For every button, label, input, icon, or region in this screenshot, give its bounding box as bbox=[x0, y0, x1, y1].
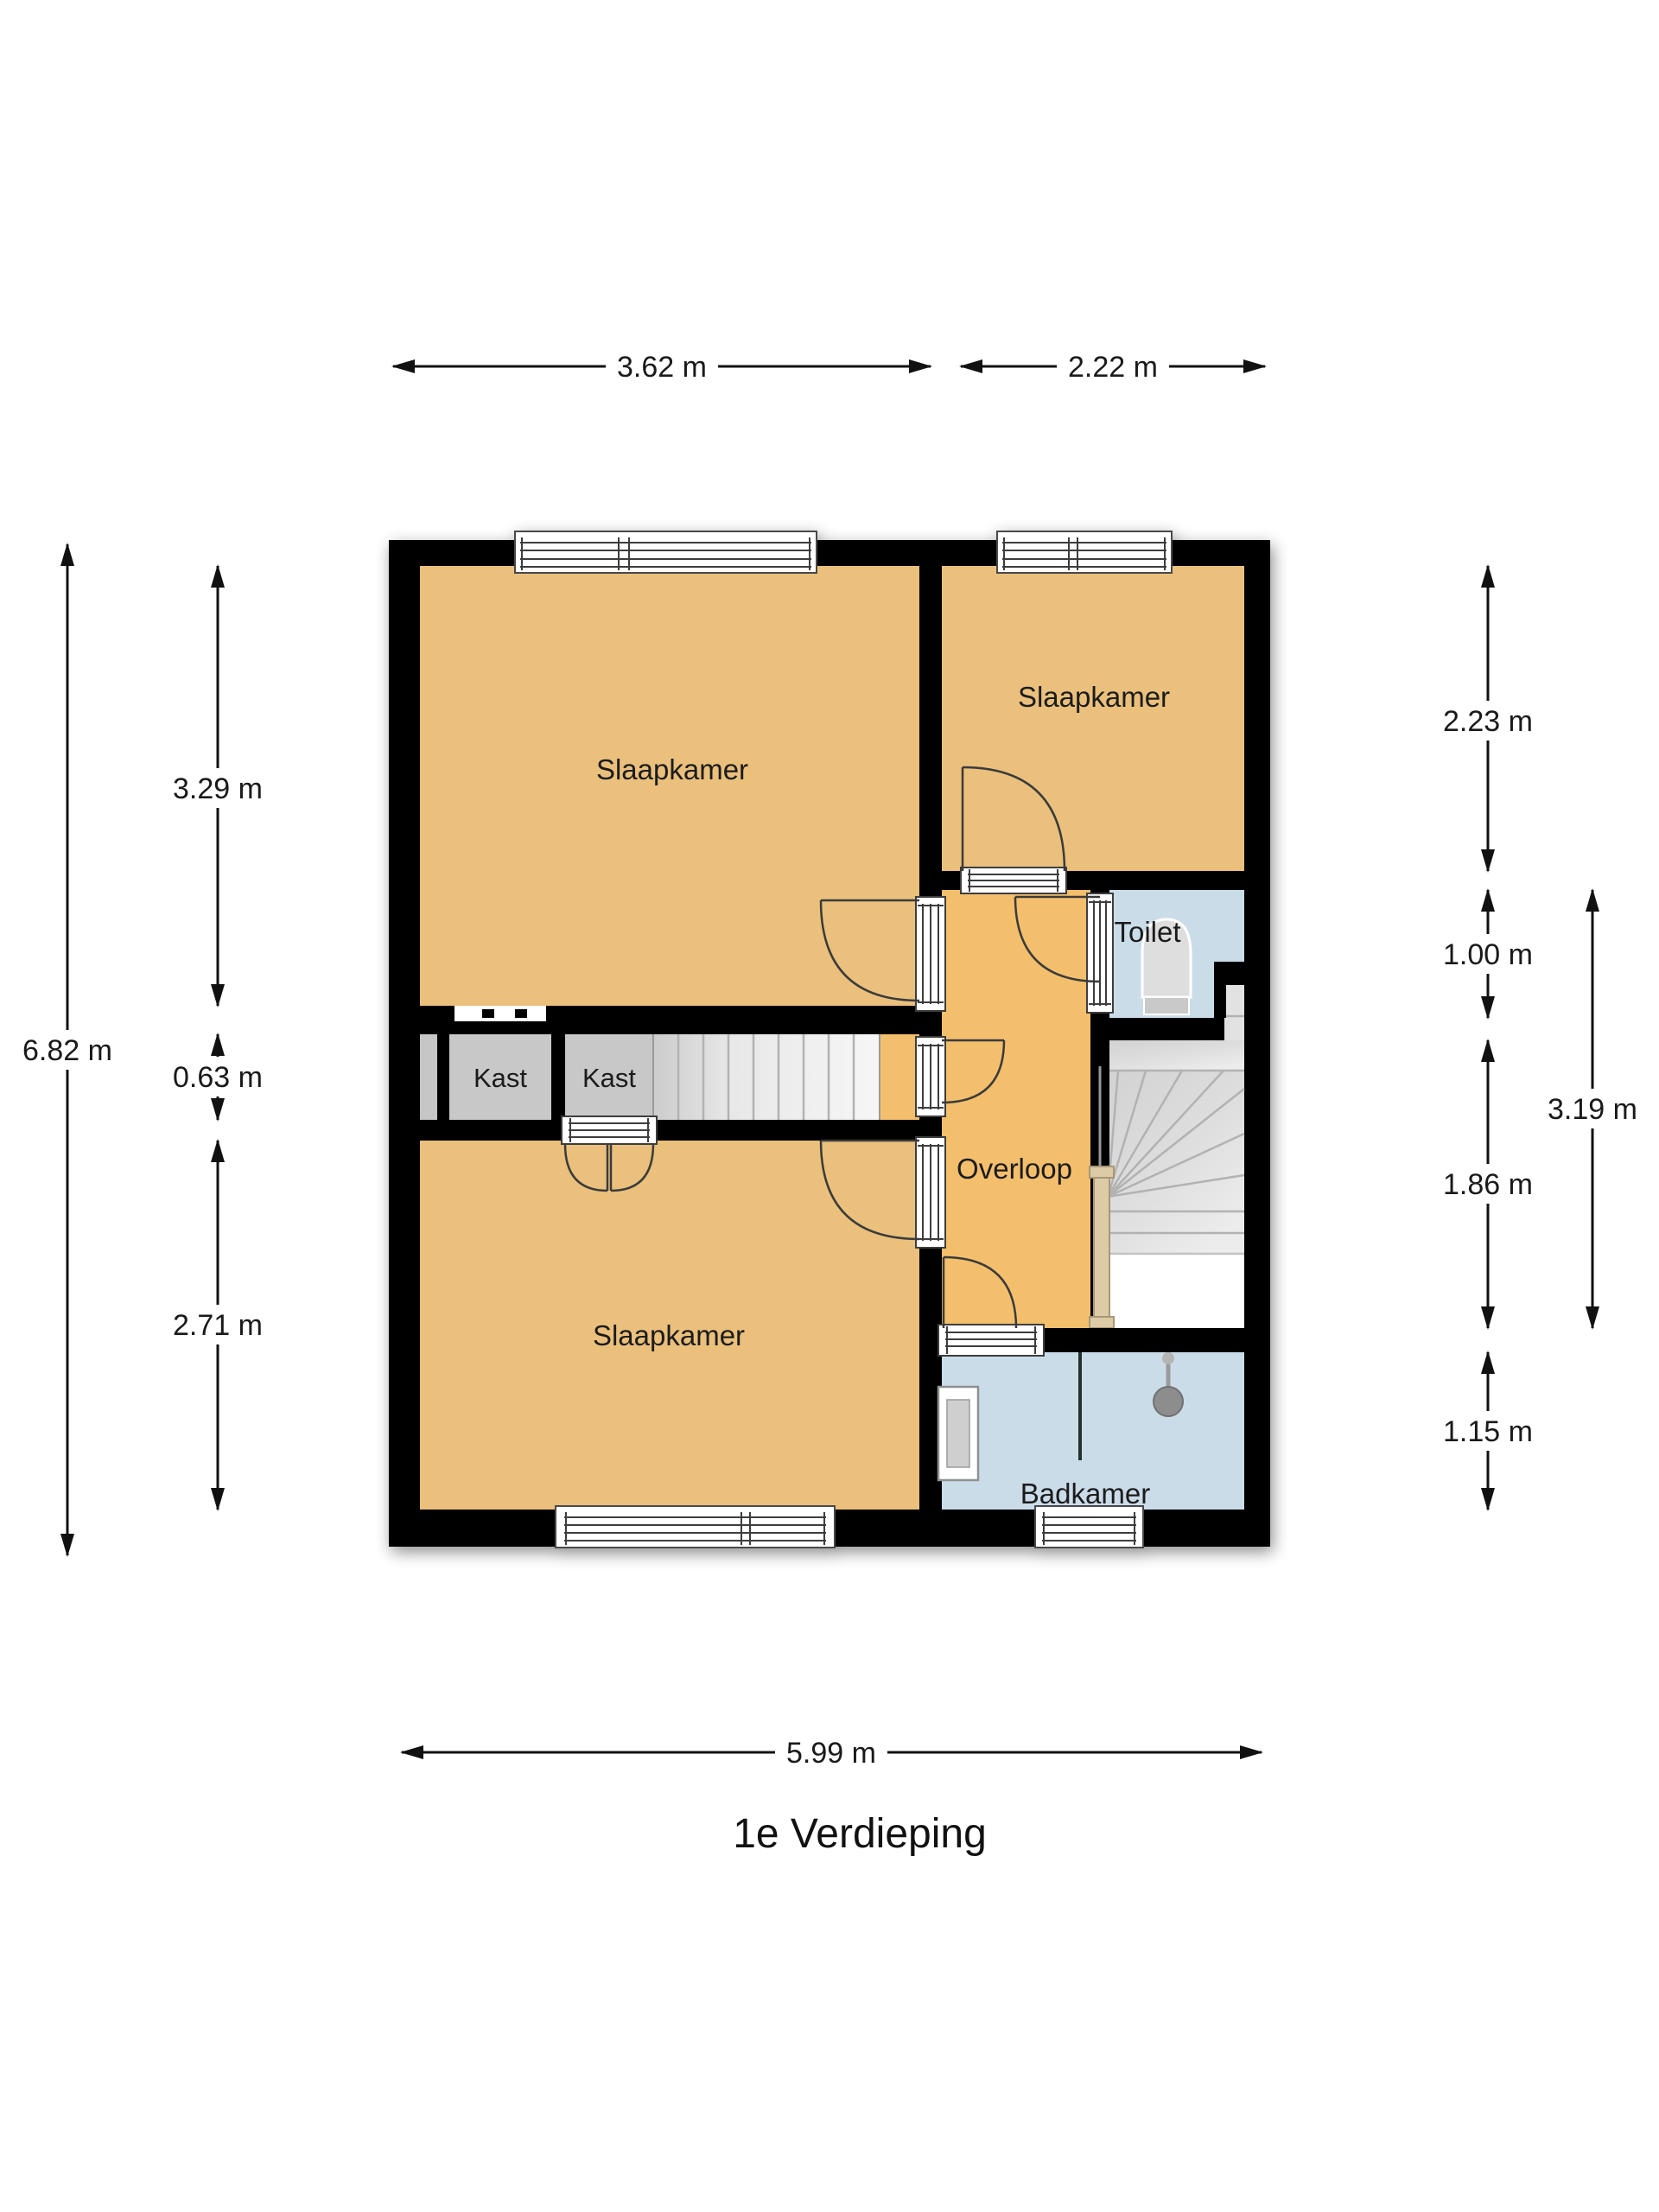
wall-toilet-notch-side bbox=[1214, 962, 1226, 1018]
svg-text:2.22 m: 2.22 m bbox=[1068, 351, 1158, 384]
label-closet-left: Kast bbox=[474, 1063, 527, 1093]
stair-landing bbox=[1109, 1254, 1244, 1328]
room-hallway bbox=[942, 890, 1090, 1328]
wall-toilet-bottom bbox=[1090, 1018, 1214, 1040]
window-bathroom bbox=[1035, 1506, 1143, 1548]
label-bedroom-top-right: Slaapkamer bbox=[1018, 681, 1170, 713]
duct-niche bbox=[420, 1034, 437, 1120]
closet-niche-opening bbox=[454, 1006, 546, 1021]
dimension-right-toilet: 1.00 m bbox=[1431, 890, 1545, 1018]
label-hallway: Overloop bbox=[957, 1153, 1072, 1185]
svg-text:5.99 m: 5.99 m bbox=[786, 1737, 876, 1770]
building: Slaapkamer Slaapkamer Slaapkamer Toilet … bbox=[389, 531, 1270, 1548]
dimension-top-left-width: 3.62 m bbox=[393, 346, 931, 387]
wall-niche-right bbox=[437, 1034, 449, 1120]
wall-closet-bottom bbox=[420, 1120, 919, 1141]
room-bedroom-top-left bbox=[420, 566, 919, 1006]
svg-text:2.71 m: 2.71 m bbox=[173, 1309, 263, 1342]
dimension-top-right-width: 2.22 m bbox=[961, 346, 1265, 387]
dimension-right-bathroom: 1.15 m bbox=[1431, 1352, 1545, 1510]
floor-plan-page: Slaapkamer Slaapkamer Slaapkamer Toilet … bbox=[0, 0, 1659, 2212]
dimension-left-bedroom-top: 3.29 m bbox=[161, 566, 275, 1006]
straight-stairs bbox=[653, 1034, 880, 1120]
dimension-right-total: 3.19 m bbox=[1535, 890, 1649, 1328]
svg-text:3.19 m: 3.19 m bbox=[1548, 1093, 1637, 1126]
dimension-left-bedroom-bottom: 2.71 m bbox=[161, 1141, 275, 1510]
window-bottom-bedroom bbox=[556, 1506, 835, 1548]
wall-between-closets bbox=[551, 1034, 565, 1120]
window-top-right bbox=[997, 531, 1172, 573]
radiator-icon bbox=[938, 1387, 978, 1480]
room-bedroom-top-right bbox=[942, 566, 1244, 871]
dimension-right-bedroom: 2.23 m bbox=[1431, 566, 1545, 871]
dimension-right-stairs: 1.86 m bbox=[1431, 1040, 1545, 1328]
svg-text:3.29 m: 3.29 m bbox=[173, 772, 263, 805]
floor-title: 1e Verdieping bbox=[733, 1811, 987, 1857]
label-bedroom-bottom: Slaapkamer bbox=[593, 1319, 745, 1351]
svg-text:3.62 m: 3.62 m bbox=[617, 351, 707, 384]
wall-stair-stub bbox=[1090, 1040, 1109, 1066]
label-closet-right: Kast bbox=[582, 1063, 636, 1093]
dimension-left-closet: 0.63 m bbox=[161, 1034, 275, 1120]
hallway-closet-gap bbox=[880, 1034, 919, 1120]
window-top-left bbox=[515, 531, 817, 573]
svg-text:1.15 m: 1.15 m bbox=[1443, 1415, 1533, 1448]
svg-text:1.00 m: 1.00 m bbox=[1443, 938, 1533, 971]
svg-text:6.82 m: 6.82 m bbox=[22, 1034, 112, 1067]
label-toilet: Toilet bbox=[1114, 916, 1180, 948]
svg-text:1.86 m: 1.86 m bbox=[1443, 1168, 1533, 1201]
svg-text:2.23 m: 2.23 m bbox=[1443, 705, 1533, 738]
dimension-left-total: 6.82 m bbox=[10, 544, 124, 1555]
stair-railing bbox=[1090, 1166, 1114, 1328]
label-bathroom: Badkamer bbox=[1020, 1478, 1150, 1510]
svg-text:0.63 m: 0.63 m bbox=[173, 1061, 263, 1094]
dimension-bottom-width: 5.99 m bbox=[402, 1732, 1262, 1773]
label-bedroom-top-left: Slaapkamer bbox=[596, 753, 748, 785]
